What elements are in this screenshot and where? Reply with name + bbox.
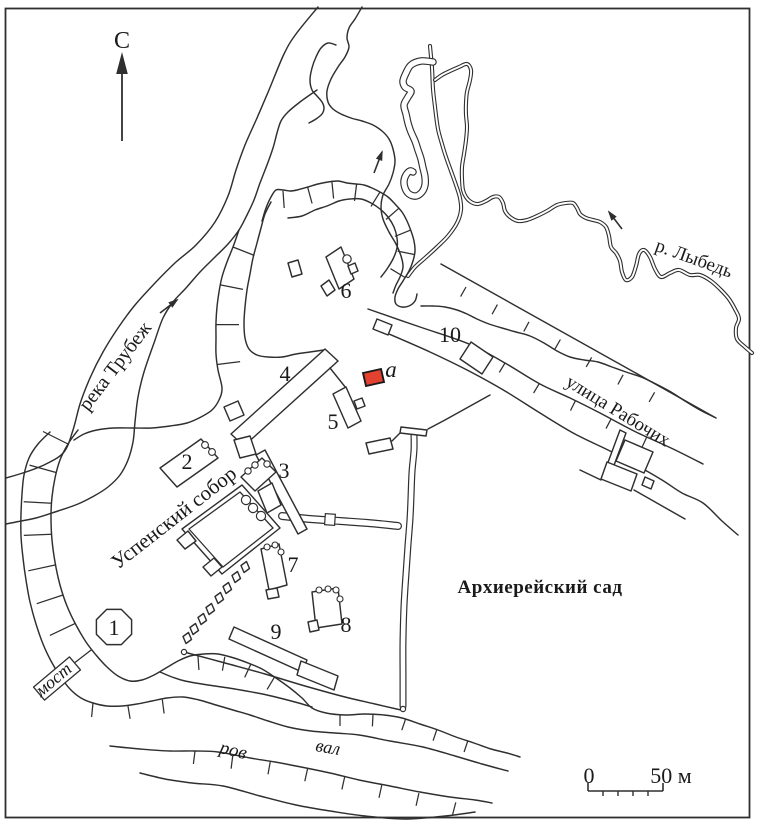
svg-text:а: а [385, 357, 397, 382]
svg-text:8: 8 [341, 612, 352, 637]
svg-text:3: 3 [279, 458, 290, 483]
svg-text:2: 2 [182, 449, 193, 474]
svg-text:7: 7 [288, 552, 299, 577]
svg-text:вал: вал [314, 735, 342, 759]
svg-text:0: 0 [584, 763, 595, 788]
svg-text:50 м: 50 м [650, 763, 692, 788]
svg-text:6: 6 [341, 278, 352, 303]
svg-text:С: С [114, 28, 130, 54]
svg-text:5: 5 [328, 409, 339, 434]
svg-text:ров: ров [216, 737, 249, 764]
svg-text:1: 1 [109, 615, 120, 640]
svg-text:9: 9 [271, 619, 282, 644]
svg-text:Архиерейский сад: Архиерейский сад [458, 577, 623, 598]
svg-text:10: 10 [439, 322, 461, 347]
svg-text:4: 4 [280, 361, 291, 386]
